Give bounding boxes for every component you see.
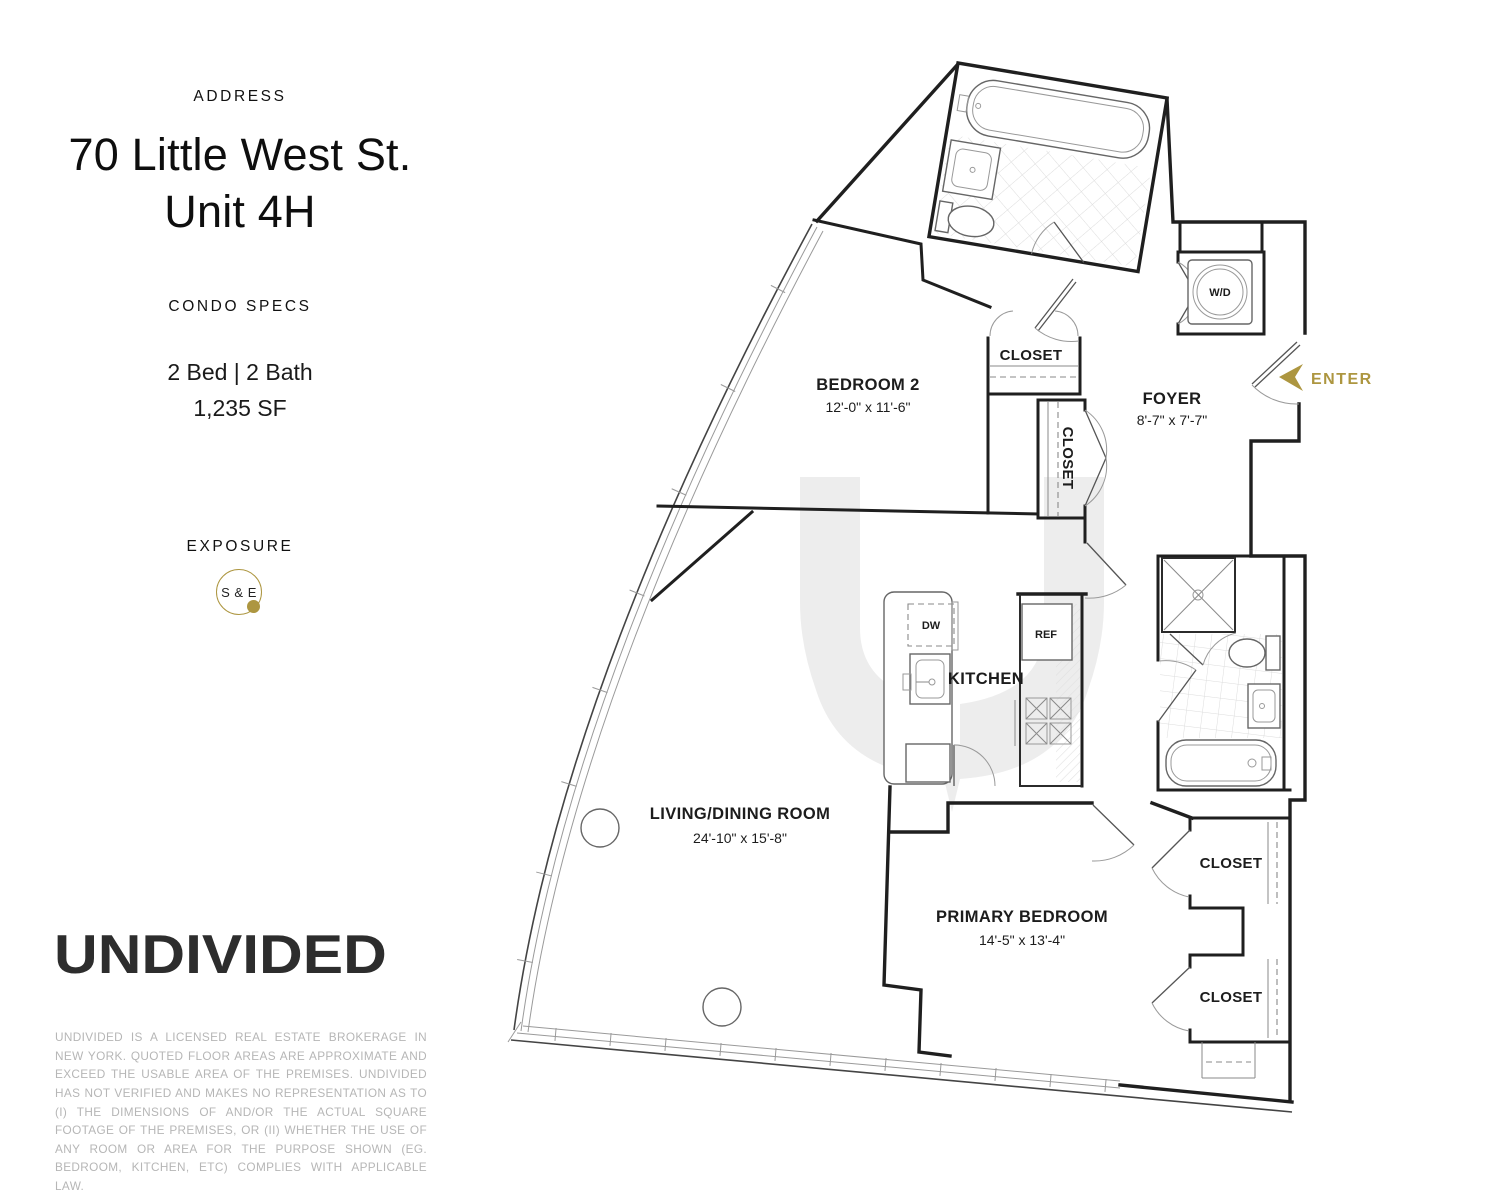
sink-vanity-icon [943, 140, 1001, 200]
room-dims-foyer: 8'-7" x 7'-7" [1137, 412, 1208, 428]
room-dims-bedroom2: 12'-0" x 11'-6" [825, 399, 910, 415]
room-dims-primary: 14'-5" x 13'-4" [979, 932, 1065, 948]
room-label-primary: PRIMARY BEDROOM [936, 908, 1108, 926]
column-icon [581, 809, 619, 847]
dishwasher-label: DW [922, 620, 941, 632]
entry [1252, 342, 1303, 404]
bottom-window-wall [508, 1022, 1292, 1112]
room-dims-living: 24'-10" x 15'-8" [693, 830, 787, 846]
floorplan: BEDROOM 2 12'-0" x 11'-6" CLOSET CLOSET … [0, 0, 1491, 1152]
column-icon [703, 988, 741, 1026]
island-cabinet [906, 744, 950, 782]
washer-dryer-label: W/D [1209, 287, 1230, 299]
bathroom-top [929, 63, 1167, 272]
closet-label-a: CLOSET [1200, 855, 1263, 872]
toilet2-tank-icon [1266, 636, 1280, 670]
enter-label: ENTER [1311, 371, 1373, 388]
toilet2-bowl-icon [1229, 639, 1265, 667]
closet-label-b: CLOSET [1200, 989, 1263, 1006]
bathroom-right [1158, 558, 1282, 786]
room-label-foyer: FOYER [1143, 390, 1202, 408]
closet-label-top: CLOSET [1000, 347, 1063, 364]
enter-arrow-icon [1279, 364, 1303, 391]
bathtub2-icon [1166, 740, 1276, 786]
room-label-bedroom2: BEDROOM 2 [816, 376, 920, 394]
closet-label-vertical: CLOSET [1059, 427, 1076, 490]
room-label-living: LIVING/DINING ROOM [650, 805, 830, 823]
curved-window-wall [514, 224, 823, 1032]
refrigerator-label: REF [1035, 629, 1057, 641]
room-label-kitchen: KITCHEN [948, 670, 1024, 688]
